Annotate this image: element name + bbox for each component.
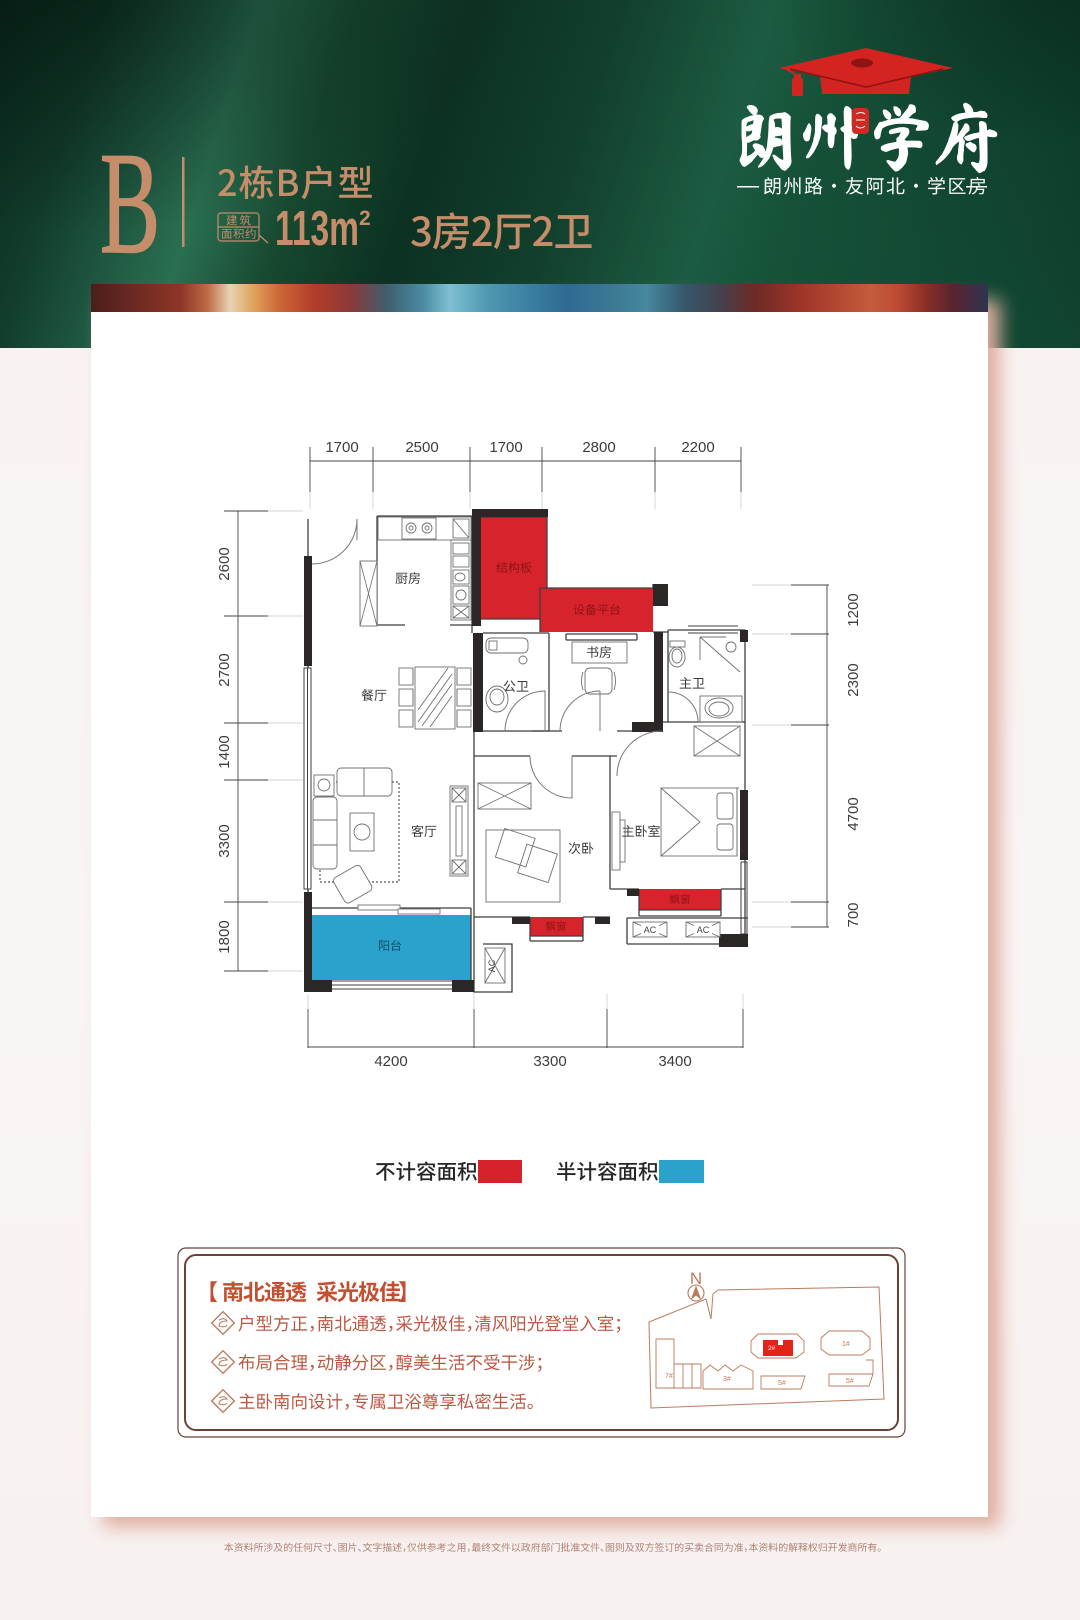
- svg-text:B: B: [100, 123, 160, 284]
- svg-text:5#: 5#: [846, 1378, 854, 1385]
- svg-text:1700: 1700: [489, 439, 522, 456]
- svg-text:113m: 113m: [275, 202, 359, 256]
- svg-text:AC: AC: [697, 925, 710, 935]
- svg-text:1#: 1#: [842, 1341, 850, 1348]
- svg-text:3300: 3300: [216, 824, 233, 857]
- svg-text:700: 700: [845, 902, 862, 927]
- svg-text:3#: 3#: [723, 1376, 731, 1383]
- svg-text:5#: 5#: [778, 1380, 786, 1387]
- svg-text:1800: 1800: [216, 920, 233, 953]
- svg-text:2500: 2500: [405, 439, 438, 456]
- svg-text:1200: 1200: [845, 593, 862, 626]
- svg-text:2200: 2200: [681, 439, 714, 456]
- svg-text:7#: 7#: [665, 1373, 673, 1380]
- svg-text:AC: AC: [644, 925, 657, 935]
- svg-text:1400: 1400: [216, 735, 233, 768]
- svg-text:2#: 2#: [768, 1345, 776, 1352]
- svg-text:2300: 2300: [845, 663, 862, 696]
- svg-text:4700: 4700: [845, 797, 862, 830]
- svg-text:2800: 2800: [582, 439, 615, 456]
- svg-text:AC: AC: [487, 959, 497, 972]
- svg-text:2: 2: [359, 207, 371, 230]
- svg-text:1700: 1700: [325, 439, 358, 456]
- svg-text:3400: 3400: [658, 1053, 691, 1070]
- svg-text:2600: 2600: [216, 547, 233, 580]
- svg-text:4200: 4200: [374, 1053, 407, 1070]
- svg-text:2700: 2700: [216, 653, 233, 686]
- svg-text:3300: 3300: [533, 1053, 566, 1070]
